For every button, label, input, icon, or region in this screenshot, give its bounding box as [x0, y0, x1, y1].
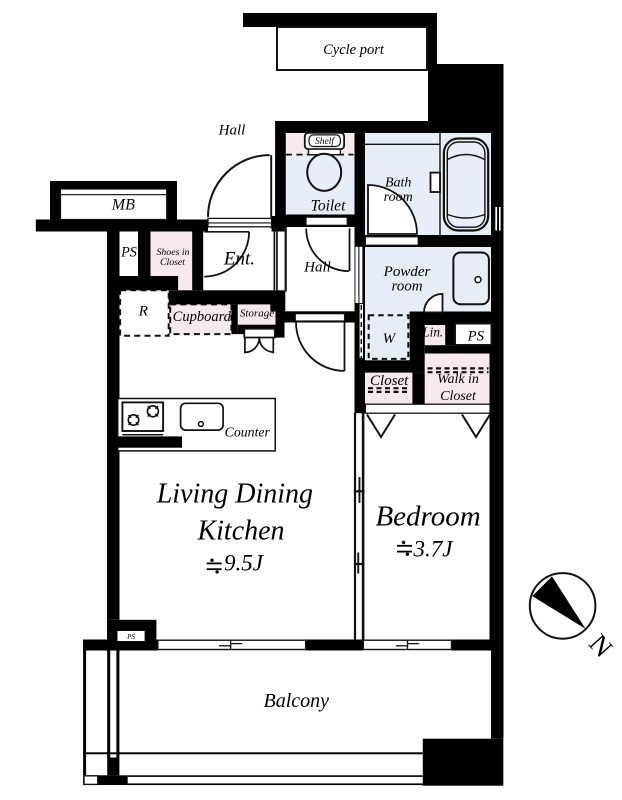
svg-text:R: R	[138, 304, 148, 320]
svg-text:Counter: Counter	[225, 425, 271, 440]
svg-text:Closet: Closet	[160, 257, 185, 268]
svg-text:W: W	[383, 331, 397, 347]
svg-text:Closet: Closet	[440, 389, 477, 404]
svg-text:room: room	[384, 190, 413, 205]
svg-text:Ent.: Ent.	[223, 249, 255, 270]
svg-text:Living Dining: Living Dining	[156, 479, 313, 510]
svg-text:PS: PS	[120, 244, 137, 260]
svg-text:PS: PS	[126, 633, 135, 641]
svg-text:Storage: Storage	[240, 308, 274, 320]
svg-text:MB: MB	[111, 197, 135, 214]
svg-text:Cycle port: Cycle port	[323, 42, 385, 58]
svg-text:Closet: Closet	[370, 373, 409, 389]
svg-text:Walk in: Walk in	[437, 372, 479, 387]
svg-text:room: room	[391, 279, 422, 295]
svg-text:Lin.: Lin.	[421, 324, 443, 339]
svg-text:Bedroom: Bedroom	[375, 501, 480, 533]
svg-text:9.5J: 9.5J	[224, 551, 265, 576]
svg-text:Hall: Hall	[218, 122, 246, 138]
svg-text:Cupboard: Cupboard	[173, 309, 232, 325]
svg-text:Bath: Bath	[385, 176, 411, 191]
svg-text:Toilet: Toilet	[311, 197, 346, 214]
svg-text:Kitchen: Kitchen	[196, 515, 284, 546]
svg-text:PS: PS	[467, 329, 485, 345]
svg-text:Balcony: Balcony	[264, 690, 330, 712]
svg-text:3.7J: 3.7J	[413, 537, 455, 562]
svg-text:Hall: Hall	[303, 260, 331, 276]
svg-text:Shelf: Shelf	[315, 136, 335, 147]
